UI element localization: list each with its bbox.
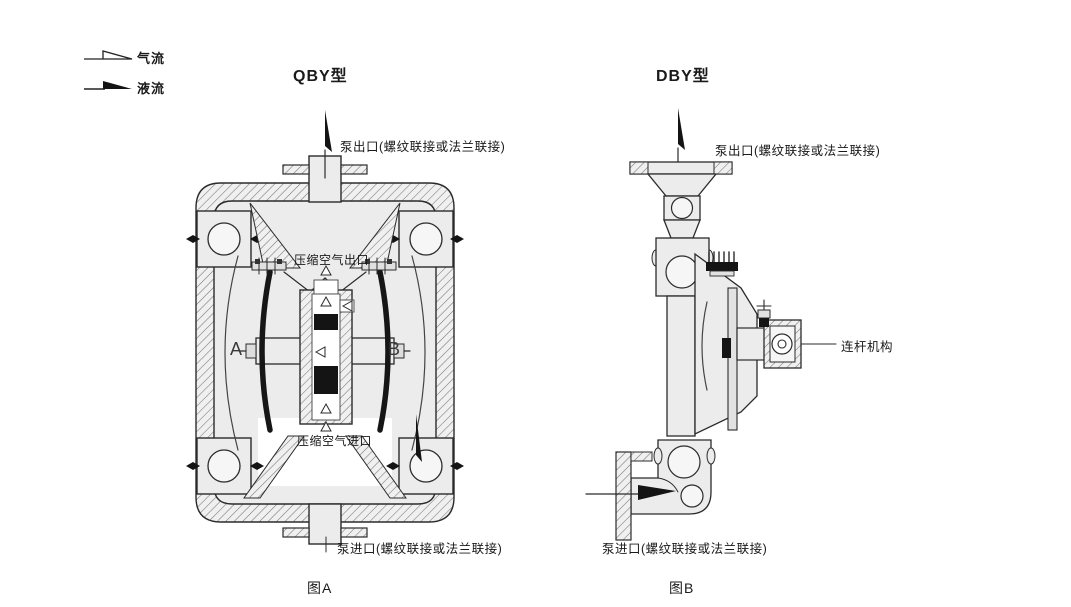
qby-air-inlet-label: 压缩空气进口: [297, 432, 372, 449]
air-flow-arrow-icon: [83, 45, 135, 65]
qby-chamber-b-label: B: [388, 339, 400, 360]
qby-title: QBY型: [293, 62, 348, 86]
dby-rod-label: 连杆机构: [841, 336, 893, 355]
outlet-arrow: [325, 110, 332, 152]
dby-caption: 图B: [669, 578, 694, 598]
qby-outlet-label: 泵出口(螺纹联接或法兰联接): [340, 136, 505, 155]
qby-chamber-a-label: A: [230, 339, 242, 360]
diagram-page: 气流 液流 QBY型 DBY型 泵出口(螺纹联接或法兰联接) 压缩空气出口 A …: [0, 0, 1071, 607]
qby-inlet-label: 泵进口(螺纹联接或法兰联接): [337, 538, 502, 557]
dby-title: DBY型: [656, 62, 710, 86]
dby-outlet-label: 泵出口(螺纹联接或法兰联接): [715, 140, 880, 159]
qby-air-outlet-label: 压缩空气出口: [294, 251, 369, 268]
liquid-flow-arrow-icon: [83, 75, 135, 95]
dby-inlet-label: 泵进口(螺纹联接或法兰联接): [602, 538, 767, 557]
legend-liquid-flow-label: 液流: [137, 78, 165, 97]
outlet-arrow: [678, 108, 685, 150]
qby-pump-drawing: [186, 110, 464, 552]
legend-air-flow-label: 气流: [137, 48, 165, 67]
qby-caption: 图A: [307, 578, 332, 598]
dby-pump-drawing: [586, 108, 836, 540]
